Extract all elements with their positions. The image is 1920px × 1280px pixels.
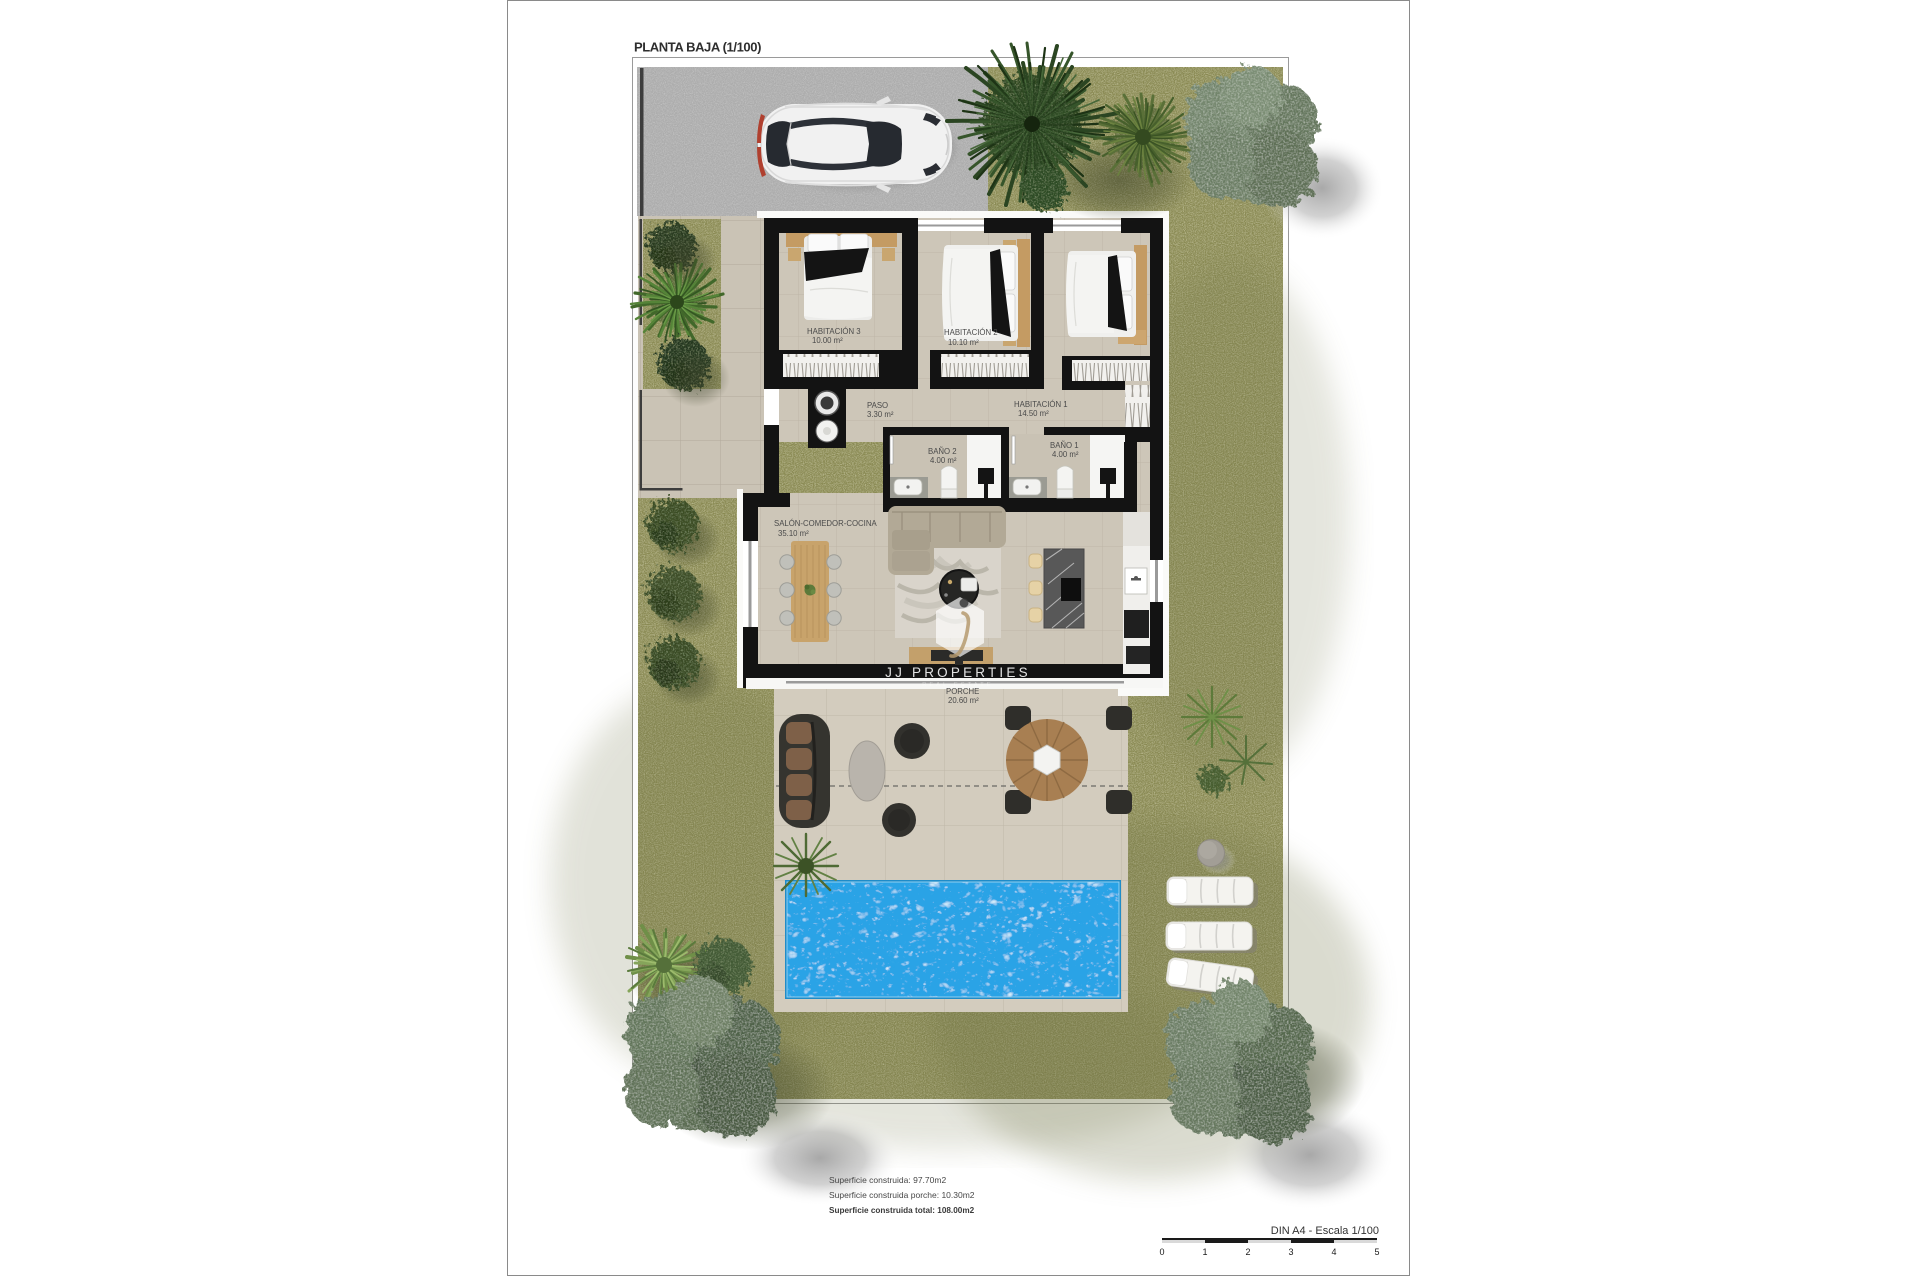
svg-text:HABITACIÓN 2: HABITACIÓN 2 — [944, 328, 998, 337]
svg-text:5: 5 — [1374, 1247, 1379, 1257]
svg-text:3: 3 — [1288, 1247, 1293, 1257]
svg-text:10.00 m²: 10.00 m² — [812, 336, 843, 345]
svg-text:4.00 m²: 4.00 m² — [930, 456, 957, 465]
svg-text:Superficie construida total: 1: Superficie construida total: 108.00m2 — [829, 1206, 975, 1215]
svg-text:14.50 m²: 14.50 m² — [1018, 409, 1049, 418]
svg-text:4.00 m²: 4.00 m² — [1052, 450, 1079, 459]
svg-text:2: 2 — [1245, 1247, 1250, 1257]
svg-text:4: 4 — [1331, 1247, 1336, 1257]
svg-text:Superficie construida porche:: Superficie construida porche: 10.30m2 — [829, 1190, 975, 1200]
svg-text:20.60 m²: 20.60 m² — [948, 696, 979, 705]
svg-text:PASO: PASO — [867, 401, 888, 410]
svg-text:DIN A4 - Escala 1/100: DIN A4 - Escala 1/100 — [1271, 1225, 1379, 1237]
svg-text:HABITACIÓN 3: HABITACIÓN 3 — [807, 327, 861, 336]
svg-text:3.30 m²: 3.30 m² — [867, 410, 894, 419]
svg-text:0: 0 — [1159, 1247, 1164, 1257]
svg-text:BAÑO 2: BAÑO 2 — [928, 447, 957, 456]
svg-text:REAL ESTATE: REAL ESTATE — [922, 682, 993, 688]
svg-text:1: 1 — [1202, 1247, 1207, 1257]
svg-text:SALÓN-COMEDOR-COCINA: SALÓN-COMEDOR-COCINA — [774, 519, 877, 528]
svg-text:10.10 m²: 10.10 m² — [948, 338, 979, 347]
svg-text:JJ PROPERTIES: JJ PROPERTIES — [885, 665, 1031, 680]
svg-text:35.10 m²: 35.10 m² — [778, 529, 809, 538]
svg-text:HABITACIÓN 1: HABITACIÓN 1 — [1014, 400, 1068, 409]
svg-text:Superficie construida: 97.70m2: Superficie construida: 97.70m2 — [829, 1175, 946, 1185]
svg-text:PORCHE: PORCHE — [946, 687, 979, 696]
svg-text:PLANTA BAJA (1/100): PLANTA BAJA (1/100) — [634, 40, 761, 55]
svg-text:BAÑO 1: BAÑO 1 — [1050, 441, 1079, 450]
